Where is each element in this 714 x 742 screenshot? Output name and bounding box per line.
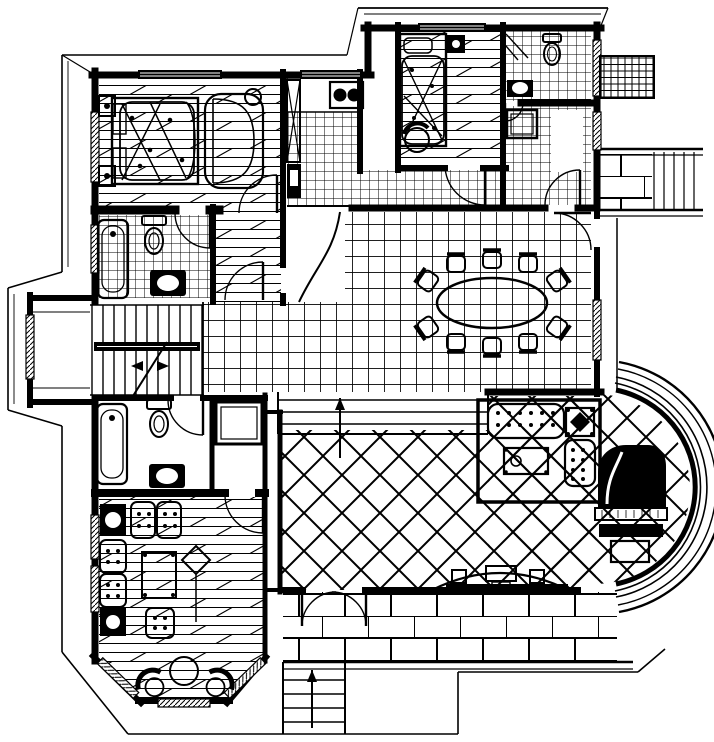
sofa-living-dot bbox=[551, 423, 555, 427]
plant-table-dot bbox=[566, 408, 570, 412]
sofa-seat-dot bbox=[116, 549, 120, 553]
sofa-seat-dot bbox=[116, 583, 120, 587]
sofa-seat-dot bbox=[106, 560, 110, 564]
sofa-living-dot bbox=[540, 411, 544, 415]
door-bathroom-3 bbox=[168, 400, 203, 435]
sink-master-part bbox=[157, 275, 179, 291]
toilet-3-part bbox=[150, 411, 168, 437]
toilet-3 bbox=[147, 400, 171, 437]
coffee-table-living-dot bbox=[544, 470, 548, 474]
floor-plan bbox=[0, 0, 714, 742]
trellis-grille bbox=[600, 56, 654, 98]
sofa-seat-dot bbox=[173, 512, 177, 516]
sofa-living-dot bbox=[540, 423, 544, 427]
door-bathroom-3-arc bbox=[168, 400, 203, 435]
ottoman-dot bbox=[153, 626, 157, 630]
sofa-living-dot bbox=[496, 423, 500, 427]
stair-handrail bbox=[94, 342, 200, 351]
arrow-head-icon bbox=[307, 670, 317, 682]
side-table-dark-bottom bbox=[100, 608, 126, 636]
stair-break-symbol-part bbox=[131, 361, 143, 371]
bed-master-dot bbox=[180, 158, 185, 163]
sofa-seat-dot bbox=[137, 524, 141, 528]
window-icon bbox=[91, 515, 99, 559]
stair-break-symbol-part bbox=[157, 361, 169, 371]
sofa-seat-dot bbox=[137, 512, 141, 516]
stove-part bbox=[348, 89, 361, 102]
armchair-living-dot bbox=[581, 468, 585, 472]
window-icon bbox=[593, 112, 601, 150]
coffee-table-living-dot bbox=[504, 448, 508, 452]
floor-plan-canvas bbox=[0, 0, 714, 742]
coffee-table-sitting-dot bbox=[171, 593, 175, 597]
plant-table-dot bbox=[590, 432, 594, 436]
terrace-brick bbox=[283, 592, 617, 662]
stair-landing-lines bbox=[33, 312, 90, 388]
plant-table-dot bbox=[566, 432, 570, 436]
armchair-living-dot bbox=[571, 468, 575, 472]
sink-2 bbox=[507, 80, 533, 97]
bed-master-dot bbox=[138, 164, 143, 169]
sofa-seat-dot bbox=[106, 594, 110, 598]
window-icon bbox=[91, 112, 99, 182]
ottoman-dot bbox=[153, 616, 157, 620]
outline-line bbox=[347, 8, 358, 55]
side-table-dark-bottom-part bbox=[106, 615, 120, 629]
fridge bbox=[287, 164, 301, 198]
hall-tiles-lower bbox=[203, 302, 591, 392]
bathtub-3 bbox=[97, 404, 127, 484]
window-icon bbox=[26, 315, 34, 379]
bed-2-dot bbox=[430, 84, 434, 88]
sink-master bbox=[150, 270, 186, 296]
coffee-table-sitting-dot bbox=[171, 553, 175, 557]
side-table-dark-top bbox=[100, 504, 126, 536]
sofa-seat-dot bbox=[116, 560, 120, 564]
nook-closet-part bbox=[216, 402, 262, 444]
bed-master-dot bbox=[168, 118, 173, 123]
outline-line bbox=[8, 272, 62, 288]
bed-2-dot bbox=[410, 68, 414, 72]
direction-arrow bbox=[307, 670, 317, 728]
bed-2-dot bbox=[412, 116, 416, 120]
armchair-living-dot bbox=[571, 458, 575, 462]
window-icon bbox=[158, 699, 210, 707]
sofa-seat-dot bbox=[173, 524, 177, 528]
kitchen-band-floor bbox=[292, 170, 503, 206]
bed-master-dot bbox=[148, 148, 153, 153]
sink-3-part bbox=[156, 468, 178, 484]
outline-line bbox=[638, 649, 665, 672]
sofa-seat-dot bbox=[116, 594, 120, 598]
bed-2-dot bbox=[432, 126, 436, 130]
bathtub-master-part bbox=[110, 231, 116, 237]
stove-part bbox=[334, 89, 347, 102]
sofa-seat-dot bbox=[163, 512, 167, 516]
window-icon bbox=[593, 300, 601, 360]
sofa-living-dot bbox=[529, 423, 533, 427]
balcony-rail-slats bbox=[654, 152, 694, 210]
living-steps bbox=[278, 392, 488, 434]
sofa-living-dot bbox=[518, 411, 522, 415]
toilet-3-part bbox=[154, 416, 164, 432]
balcony-brick bbox=[598, 154, 652, 210]
sofa-seat-dot bbox=[163, 524, 167, 528]
window-band-icon bbox=[138, 70, 222, 79]
armchair-living-dot bbox=[581, 448, 585, 452]
window-band-icon bbox=[418, 23, 486, 32]
bathtub-3-part bbox=[109, 415, 115, 421]
sofa-living-dot bbox=[551, 411, 555, 415]
armchair-living-dot bbox=[571, 448, 575, 452]
armchair-living-dot bbox=[581, 477, 585, 481]
sofa-living-dot bbox=[529, 411, 533, 415]
sink-2-part bbox=[512, 82, 528, 94]
corridor-floor bbox=[215, 207, 281, 302]
sofa-seat-dot bbox=[147, 512, 151, 516]
nook-closet-part bbox=[221, 407, 257, 439]
terrace-steps bbox=[283, 662, 345, 734]
hall-curved-wall bbox=[299, 212, 340, 302]
outline-line bbox=[8, 410, 62, 426]
ottoman-dot bbox=[163, 616, 167, 620]
storage-clear-zone bbox=[551, 110, 583, 172]
fridge-part bbox=[290, 170, 298, 186]
sofa-seat-dot bbox=[106, 549, 110, 553]
living-floor-left bbox=[280, 430, 490, 590]
bed-master-dot bbox=[130, 116, 135, 121]
coffee-table-living-dot bbox=[504, 470, 508, 474]
sofa-seat-dot bbox=[106, 583, 110, 587]
ottoman-dot bbox=[163, 626, 167, 630]
sofa-living-dot bbox=[496, 411, 500, 415]
coffee-table-sitting-dot bbox=[143, 593, 147, 597]
plant-table-dot bbox=[590, 408, 594, 412]
sofa-living-dot bbox=[518, 423, 522, 427]
hall-tiles-upper bbox=[345, 212, 591, 302]
window-icon bbox=[91, 566, 99, 612]
armchair-living-dot bbox=[581, 458, 585, 462]
bed-2-part bbox=[452, 40, 460, 48]
sofa-living-dot bbox=[507, 411, 511, 415]
bed-master-part bbox=[104, 103, 110, 109]
coffee-table-sitting-dot bbox=[143, 553, 147, 557]
bed-master-part bbox=[104, 173, 110, 179]
sofa-living-dot bbox=[507, 423, 511, 427]
sink-3 bbox=[149, 464, 185, 488]
storage-clear-zone-part bbox=[551, 110, 583, 172]
armchair-living-dot bbox=[571, 477, 575, 481]
nook-closet bbox=[216, 402, 262, 444]
side-table-dark-top-part bbox=[105, 512, 121, 528]
coffee-table-living-dot bbox=[544, 448, 548, 452]
sofa-seat-dot bbox=[147, 524, 151, 528]
grand-piano-part bbox=[599, 524, 663, 537]
